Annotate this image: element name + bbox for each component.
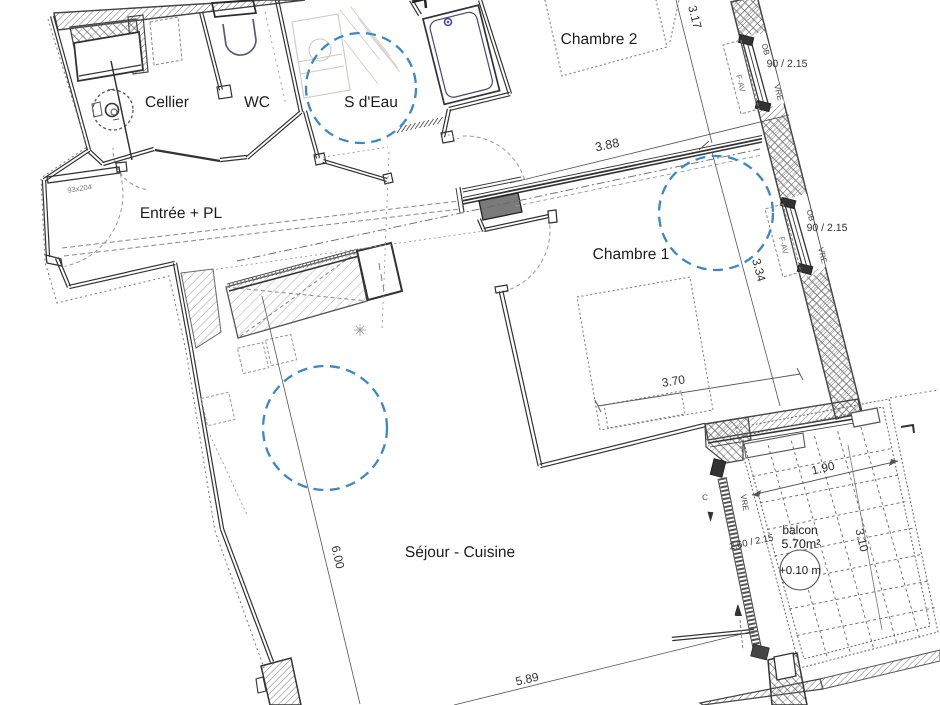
svg-text:+0.10 m: +0.10 m — [779, 565, 821, 577]
svg-text:90 / 2.15: 90 / 2.15 — [807, 222, 848, 234]
svg-text:Séjour - Cuisine: Séjour - Cuisine — [405, 544, 515, 561]
svg-text:WC: WC — [244, 94, 270, 111]
svg-text:S d'Eau: S d'Eau — [344, 94, 398, 111]
svg-text:Chambre 1: Chambre 1 — [593, 246, 670, 263]
svg-text:Entrée + PL: Entrée + PL — [140, 205, 223, 222]
svg-text:90 / 2.15: 90 / 2.15 — [767, 58, 808, 70]
svg-text:Chambre 2: Chambre 2 — [561, 31, 638, 48]
svg-text:balcon: balcon — [782, 523, 817, 537]
svg-text:Cellier: Cellier — [145, 94, 189, 111]
svg-text:5.70m²: 5.70m² — [782, 537, 821, 551]
svg-text:C: C — [702, 493, 708, 502]
